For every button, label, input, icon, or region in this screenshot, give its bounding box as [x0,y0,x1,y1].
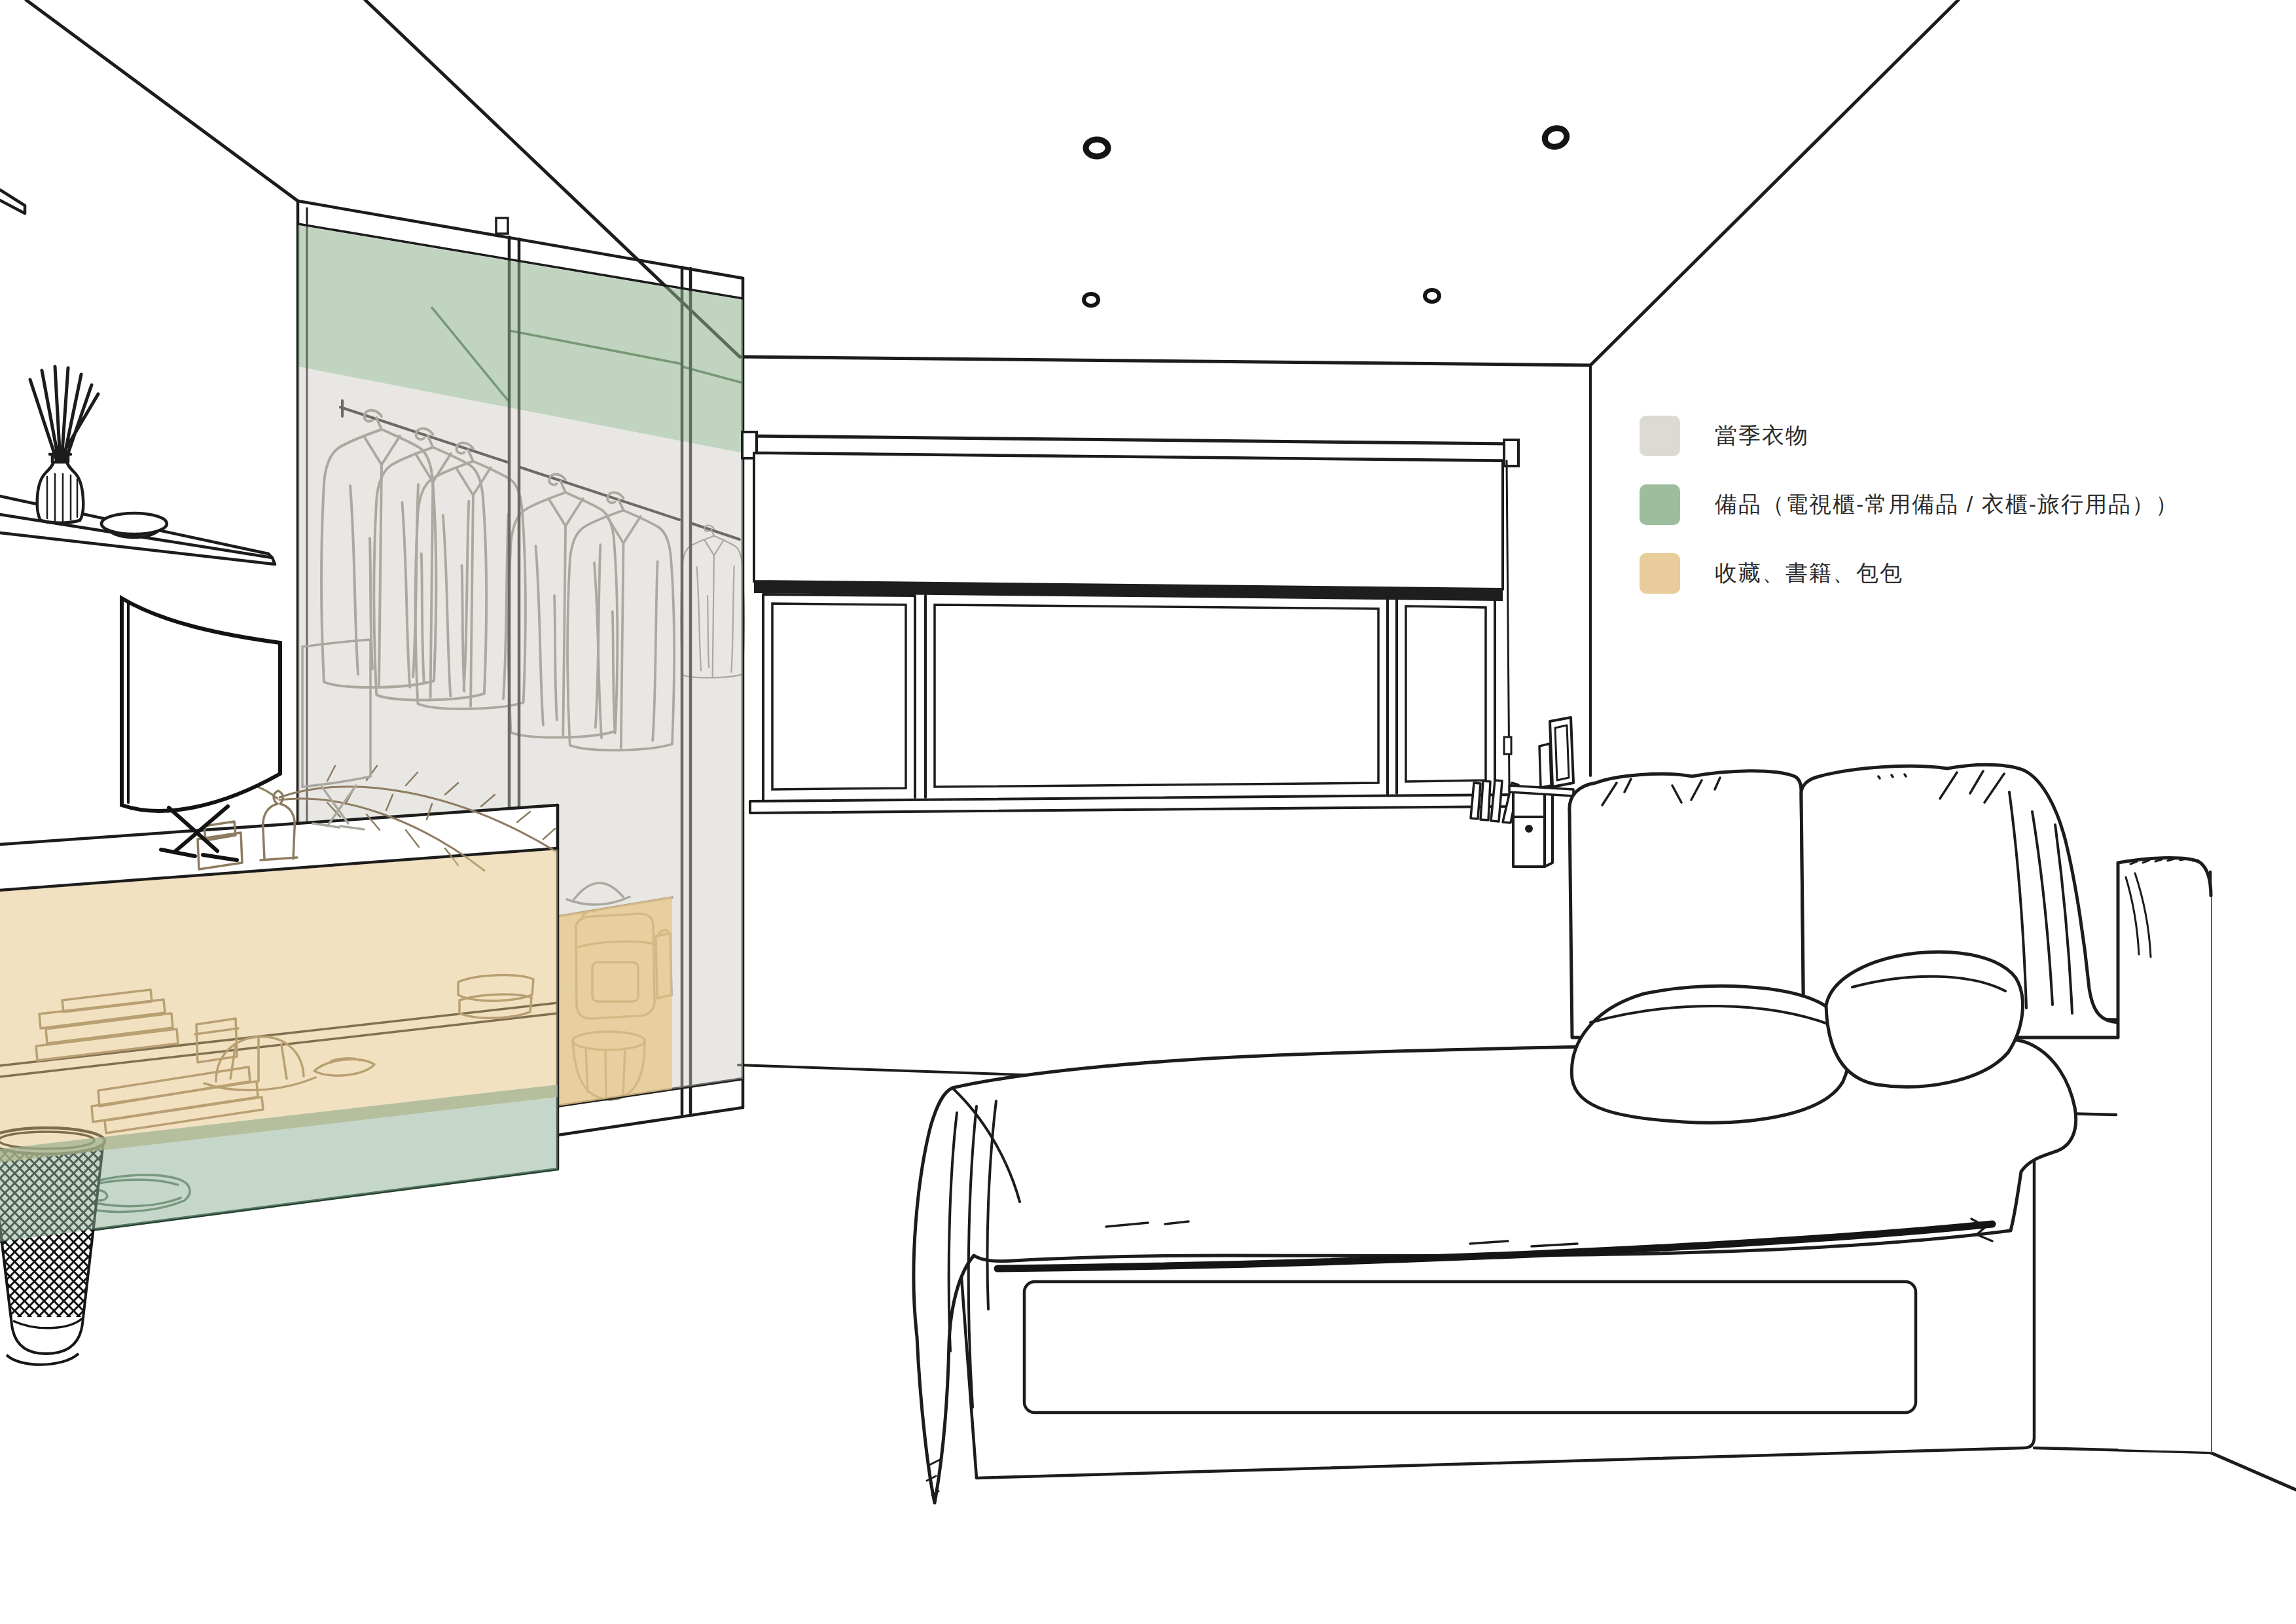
downlight-icon [1425,290,1439,302]
downlight-icon [1086,139,1108,156]
downlight-icon [1543,125,1570,149]
interior-rendering: 當季衣物 備品（電視櫃-常用備品 / 衣櫃-旅行用品）） 收藏、書籍、包包 [0,0,2296,1624]
ceiling-edge-left [26,0,298,201]
reed-diffuser [30,367,98,523]
roller-blind [742,432,1518,785]
bed-drawer[interactable] [1024,1282,1916,1413]
upper-shelf-fragment [0,190,25,213]
window-sill [750,795,1509,813]
bedroom-line-drawing [0,0,2296,1624]
legend-item-supplies: 備品（電視櫃-常用備品 / 衣櫃-旅行用品）） [1640,484,2179,525]
downlight-icon [1084,294,1098,306]
headboard-end-panel [2118,858,2211,1453]
ceiling-downlights [1084,125,1569,306]
bedside-cabinet [1513,787,1552,867]
pillow [1826,952,2022,1087]
window-frame [750,594,1509,813]
bowl [101,513,167,537]
floor-edge-right [2210,1453,2296,1490]
legend-swatch-supplies [1640,484,1680,525]
mirror [1539,717,1573,787]
bed [914,765,2212,1503]
tv [122,598,280,860]
window [742,432,1518,813]
wall-shelf [0,190,275,564]
legend-swatch-seasonal [1640,416,1680,456]
drawer-knob[interactable] [1526,826,1532,831]
cord-weight[interactable] [1504,737,1511,754]
legend-label-supplies: 備品（電視櫃-常用備品 / 衣櫃-旅行用品）） [1715,490,2179,520]
legend-label-collections: 收藏、書籍、包包 [1715,558,1903,588]
door-stopper [496,218,508,234]
back-wall-top-edge [740,357,1590,365]
legend-item-collections: 收藏、書籍、包包 [1640,553,1903,594]
blind-fabric [754,453,1503,589]
legend-swatch-collections [1640,553,1680,594]
ceiling-edge-right [1590,0,1958,365]
legend-label-seasonal: 當季衣物 [1715,421,1809,451]
zone-overlay-collection-wardrobe [558,897,672,1106]
legend-item-seasonal: 當季衣物 [1640,416,1809,456]
